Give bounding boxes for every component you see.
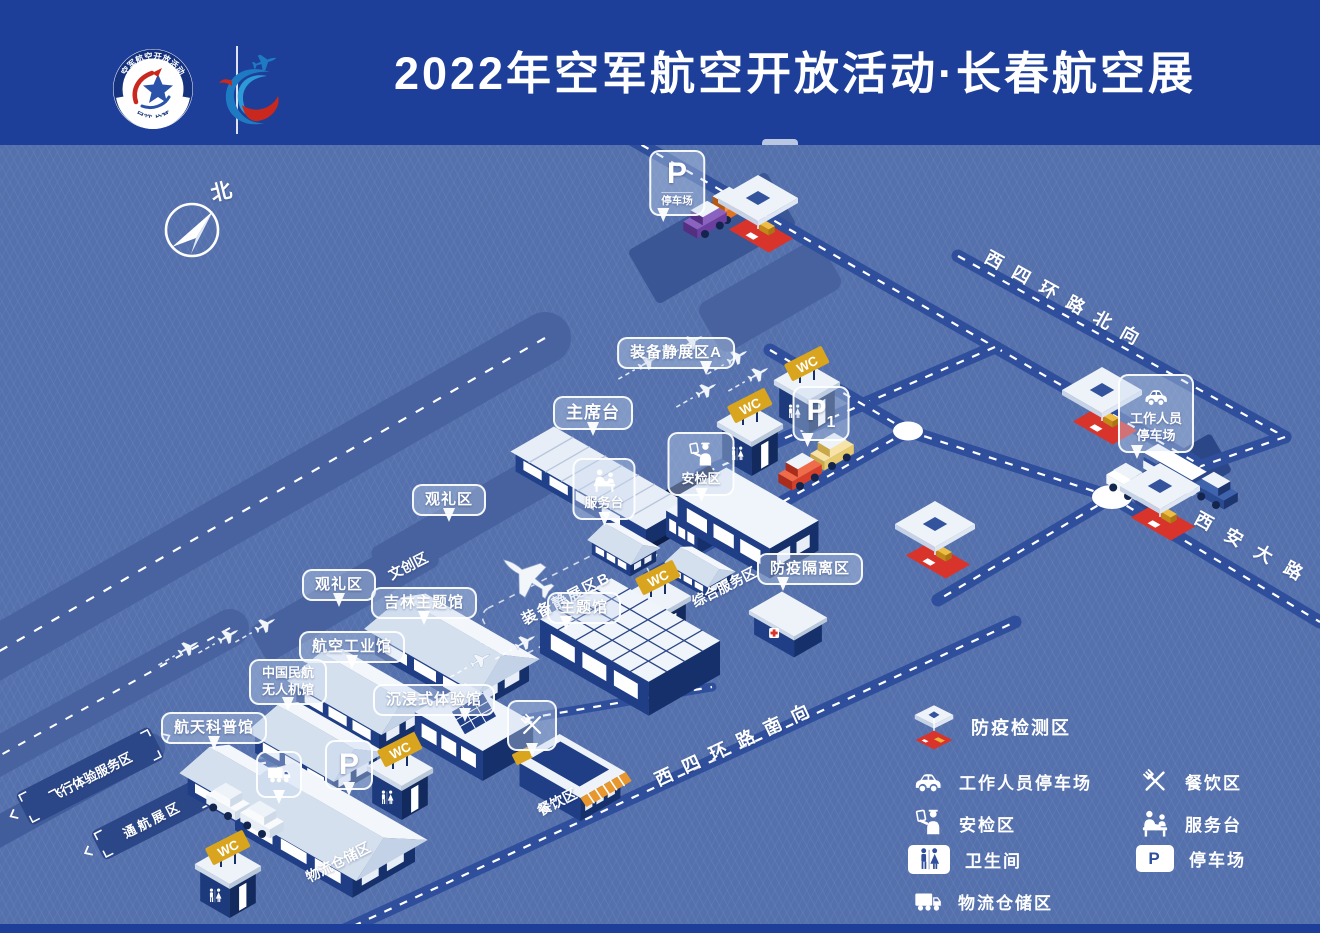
event-badge-logo: 空军航空开放活动 吉林·长春	[112, 48, 194, 130]
staff-parking-label: 工作人员 停车场	[1118, 374, 1194, 453]
aviation-industry-hall-label: 航空工业馆	[299, 631, 405, 663]
quarantine-label: 防疫隔离区	[757, 553, 863, 585]
theme-hall-label: 主题馆	[547, 592, 621, 624]
truck-icon	[913, 886, 943, 916]
legend-item-dining: 餐饮区	[1140, 766, 1242, 796]
legend-item-service-desk: 服务台	[1140, 808, 1242, 838]
footer-strip	[0, 924, 1320, 933]
legend-item-parking: P 停车场	[1136, 845, 1246, 872]
equipment-a-label: 装备静展区A	[617, 337, 735, 369]
car-icon	[912, 766, 944, 796]
service-desk-icon	[1140, 808, 1170, 838]
dining-icon	[518, 711, 546, 739]
parking-icon: P	[1136, 845, 1174, 872]
viewing-area-1-label: 观礼区	[412, 484, 486, 516]
legend-item-security-check: 安检区	[914, 808, 1016, 838]
viewing-area-2-label: 观礼区	[302, 569, 376, 601]
logistics-truck-icon-label	[256, 751, 302, 798]
parking-north-label: P 停车场	[649, 150, 705, 216]
header: 空军航空开放活动 吉林·长春 2022年空军航空开放活动·长春航空展	[0, 0, 1320, 145]
crane-logo	[212, 50, 290, 132]
service-desk-icon	[591, 467, 617, 493]
security-check-icon	[914, 808, 944, 838]
parking-p1-label: P1	[793, 386, 850, 441]
dining-icon-label	[507, 700, 557, 751]
legend-item-logistics: 物流仓储区	[913, 886, 1053, 916]
truck-icon	[266, 761, 292, 787]
jilin-hall-label: 吉林主题馆	[371, 587, 477, 619]
page-title: 2022年空军航空开放活动·长春航空展	[300, 38, 1290, 110]
rostrum-label: 主席台	[553, 396, 633, 430]
dining-icon	[1140, 766, 1170, 796]
map-scene: WCWCWCWCWC	[0, 145, 1320, 925]
restroom-icon	[908, 845, 950, 874]
legend-item-staff-parking: 工作人员停车场	[912, 766, 1092, 796]
airshow-map-poster: 空军航空开放活动 吉林·长春 2022年空军航空开放活动·长春航空展 WCWCW…	[0, 0, 1320, 933]
security-check-icon	[687, 441, 715, 469]
caac-uav-hall-label: 中国民航 无人机馆	[249, 659, 327, 705]
legend-item-epidemic-test: 防疫检测区	[912, 703, 1071, 750]
aerospace-hall-label: 航天科普馆	[161, 712, 267, 744]
tent-icon	[912, 703, 956, 750]
service-desk-label: 服务台	[572, 458, 635, 520]
security-check-label: 安检区	[667, 432, 734, 496]
parking-south-label: P	[325, 740, 373, 790]
immersive-hall-label: 沉浸式体验馆	[373, 684, 495, 716]
car-icon	[1141, 383, 1171, 409]
legend-item-restroom: 卫生间	[908, 845, 1022, 874]
